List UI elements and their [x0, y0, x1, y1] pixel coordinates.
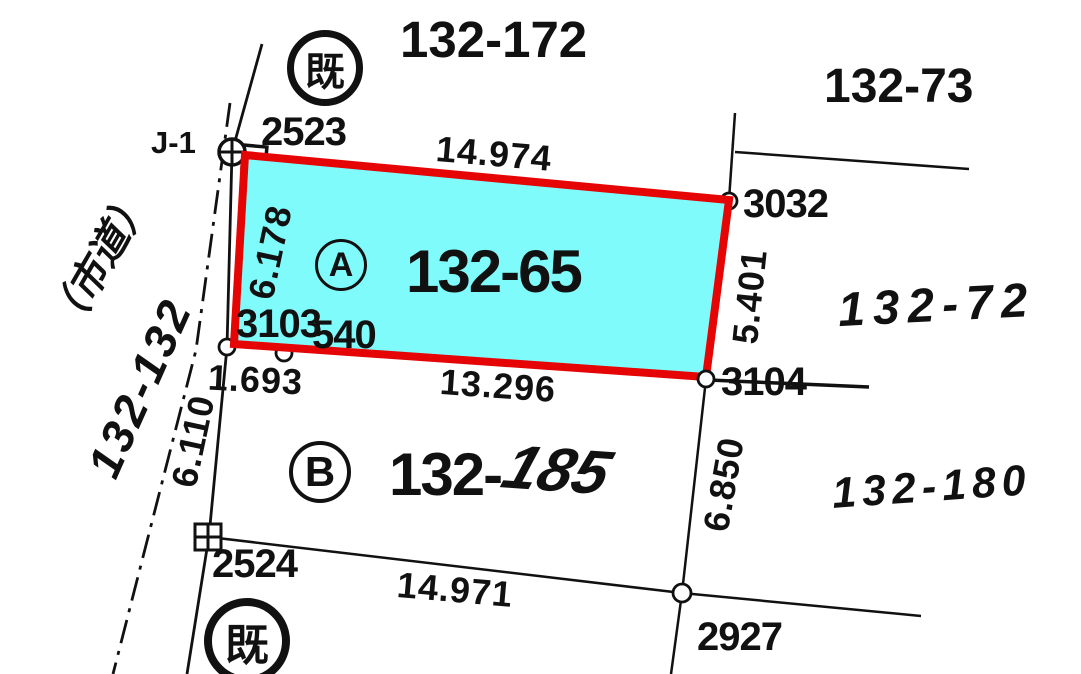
point-label-3032: 3032	[743, 184, 828, 224]
length-label-parcel-b-bottom: 14.971	[396, 567, 515, 613]
parcel-a-letter: A	[329, 246, 354, 285]
point-label-2524: 2524	[212, 544, 297, 584]
length-label-right-edge: 5.401	[727, 247, 773, 345]
length-label-bottom-edge: 13.296	[439, 364, 557, 408]
parcel-b-letter: B	[305, 448, 335, 496]
parcel-label-132-73: 132-73	[824, 63, 973, 111]
point-label-3104: 3104	[721, 362, 806, 402]
existing-point-stamp-bottom: 既	[204, 598, 290, 674]
parcel-b-number-handwritten: 185	[495, 437, 618, 505]
parcel-b-circle-marker: B	[289, 441, 351, 503]
parcel-a-circle-marker: A	[315, 239, 367, 291]
point-label-2523: 2523	[261, 112, 346, 152]
existing-point-stamp-top: 既	[287, 30, 363, 106]
stamp-top-character: 既	[305, 39, 345, 97]
parcel-label-132-72: 132-72	[837, 277, 1037, 335]
south-boundary-parcel-b	[209, 537, 921, 616]
point-label-2927: 2927	[697, 617, 782, 657]
point-label-540: 540	[312, 315, 376, 355]
parcel-label-132-172: 132-172	[400, 14, 587, 65]
boundary-132-73-132-72	[735, 152, 969, 169]
stamp-bottom-character: 既	[225, 609, 269, 673]
length-label-1693: 1.693	[207, 360, 304, 401]
point-label-3103: 3103	[236, 304, 321, 344]
cadastral-survey-map: 既 既 132-172 132-73 A 132-65 B 132- 185 1…	[0, 0, 1081, 674]
parcel-a-number: 132-65	[406, 242, 581, 302]
east-boundary-upper	[729, 113, 735, 200]
boundary-point-2927	[673, 584, 691, 602]
boundary-point-3104	[698, 371, 714, 387]
parcel-b-number-printed: 132-	[389, 445, 501, 505]
station-label-j1: J-1	[151, 127, 196, 158]
length-label-top-edge: 14.974	[435, 131, 554, 177]
